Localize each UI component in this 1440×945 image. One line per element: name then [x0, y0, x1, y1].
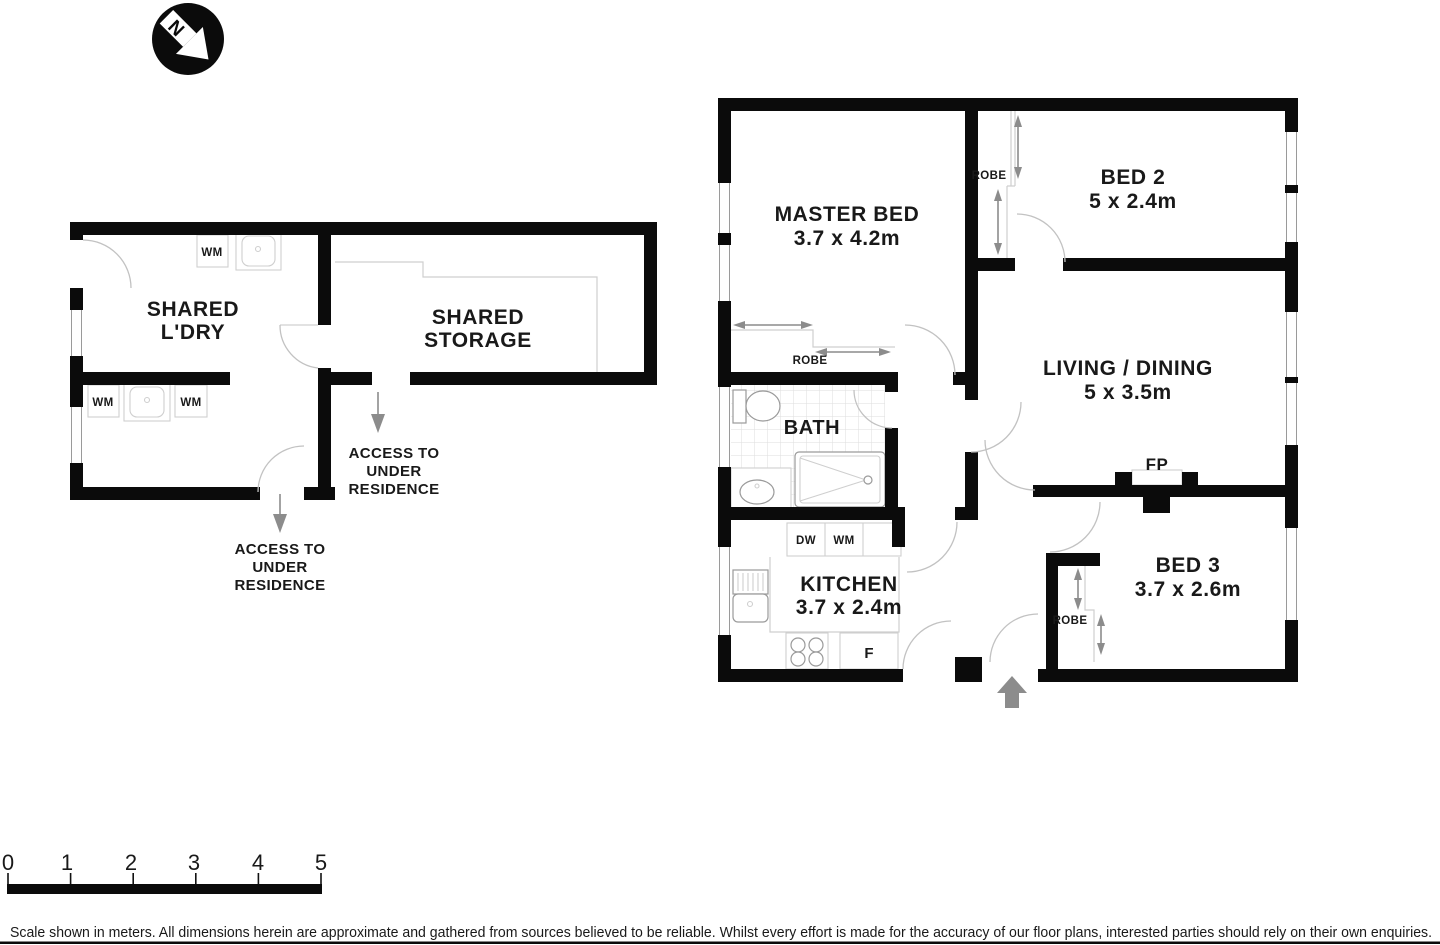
- svg-text:UNDER: UNDER: [366, 463, 421, 480]
- room-label-bath: BATH: [784, 417, 840, 439]
- scale-bar-rule: [7, 884, 322, 894]
- bed2-robe-line: [1007, 111, 1015, 258]
- room-label-kitchen: KITCHEN: [800, 573, 898, 596]
- entry-arrow: [997, 676, 1027, 708]
- disclaimer-text: Scale shown in meters. All dimensions he…: [10, 924, 1432, 941]
- room-dims-bed3: 3.7 x 2.6m: [1135, 578, 1241, 601]
- toilet-icon: [733, 390, 780, 423]
- scale-ticks: [8, 873, 321, 884]
- room-label-bed3: BED 3: [1156, 554, 1221, 577]
- floor-plan-drawing: N: [0, 0, 1440, 945]
- room-label-living-dining: LIVING / DINING: [1043, 357, 1213, 380]
- footer-rule: [0, 942, 1440, 945]
- wm-label: WM: [180, 397, 201, 409]
- north-indicator: N: [152, 3, 224, 75]
- door-arc: [258, 446, 304, 492]
- scale-tick-label: 5: [315, 850, 327, 875]
- robe-label: ROBE: [1053, 615, 1088, 627]
- robe-label: ROBE: [972, 170, 1007, 182]
- room-label-shared-storage-2: STORAGE: [424, 329, 532, 352]
- floor-plan-page: N: [0, 0, 1440, 945]
- scale-tick-label: 3: [188, 850, 200, 875]
- wm-label: WM: [833, 535, 854, 547]
- fireplace-label: FP: [1146, 455, 1169, 474]
- outbuilding: SHARED L'DRY SHARED STORAGE WM WM WM ACC…: [70, 222, 657, 594]
- door-arc: [280, 325, 318, 368]
- bed3-robe-line: [1085, 566, 1094, 662]
- basin-icon: [731, 468, 791, 512]
- shower-icon: [795, 452, 885, 507]
- scale-tick-label: 1: [61, 850, 73, 875]
- room-label-master-bed: MASTER BED: [775, 203, 920, 226]
- sink-icon: [733, 570, 768, 622]
- room-label-shared-laundry-2: L'DRY: [161, 321, 225, 344]
- svg-text:ACCESS TO: ACCESS TO: [235, 541, 326, 558]
- wm-label: WM: [92, 397, 113, 409]
- access-arrow: [371, 392, 385, 433]
- scale-bar: 0 1 2 3 4 5: [2, 850, 327, 894]
- svg-text:ACCESS TO: ACCESS TO: [349, 445, 440, 462]
- access-arrow: [273, 494, 287, 533]
- scale-tick-label: 2: [125, 850, 137, 875]
- wm-label: WM: [201, 247, 222, 259]
- svg-text:RESIDENCE: RESIDENCE: [348, 481, 439, 498]
- scale-tick-label: 4: [252, 850, 264, 875]
- room-label-shared-storage: SHARED: [432, 306, 524, 329]
- room-label-shared-laundry: SHARED: [147, 298, 239, 321]
- room-label-bed2: BED 2: [1101, 166, 1166, 189]
- door-arc: [83, 240, 131, 288]
- robe-label: ROBE: [793, 355, 828, 367]
- room-dims-living-dining: 5 x 3.5m: [1084, 381, 1172, 404]
- laundry-tub-icon: [236, 232, 281, 270]
- residence: MASTER BED 3.7 x 4.2m BED 2 5 x 2.4m LIV…: [718, 98, 1298, 708]
- svg-text:RESIDENCE: RESIDENCE: [234, 577, 325, 594]
- room-dims-master-bed: 3.7 x 4.2m: [794, 227, 900, 250]
- master-robe-line: [731, 330, 895, 347]
- room-dims-kitchen: 3.7 x 2.4m: [796, 596, 902, 619]
- laundry-tub-icon: [124, 383, 170, 421]
- dishwasher-label: DW: [796, 535, 816, 547]
- fridge-label: F: [864, 645, 873, 662]
- cooktop-icon: [786, 633, 828, 669]
- svg-text:UNDER: UNDER: [252, 559, 307, 576]
- access-note: ACCESS TO UNDER RESIDENCE: [348, 445, 439, 498]
- scale-tick-label: 0: [2, 850, 14, 875]
- room-dims-bed2: 5 x 2.4m: [1089, 190, 1177, 213]
- access-note: ACCESS TO UNDER RESIDENCE: [234, 541, 325, 594]
